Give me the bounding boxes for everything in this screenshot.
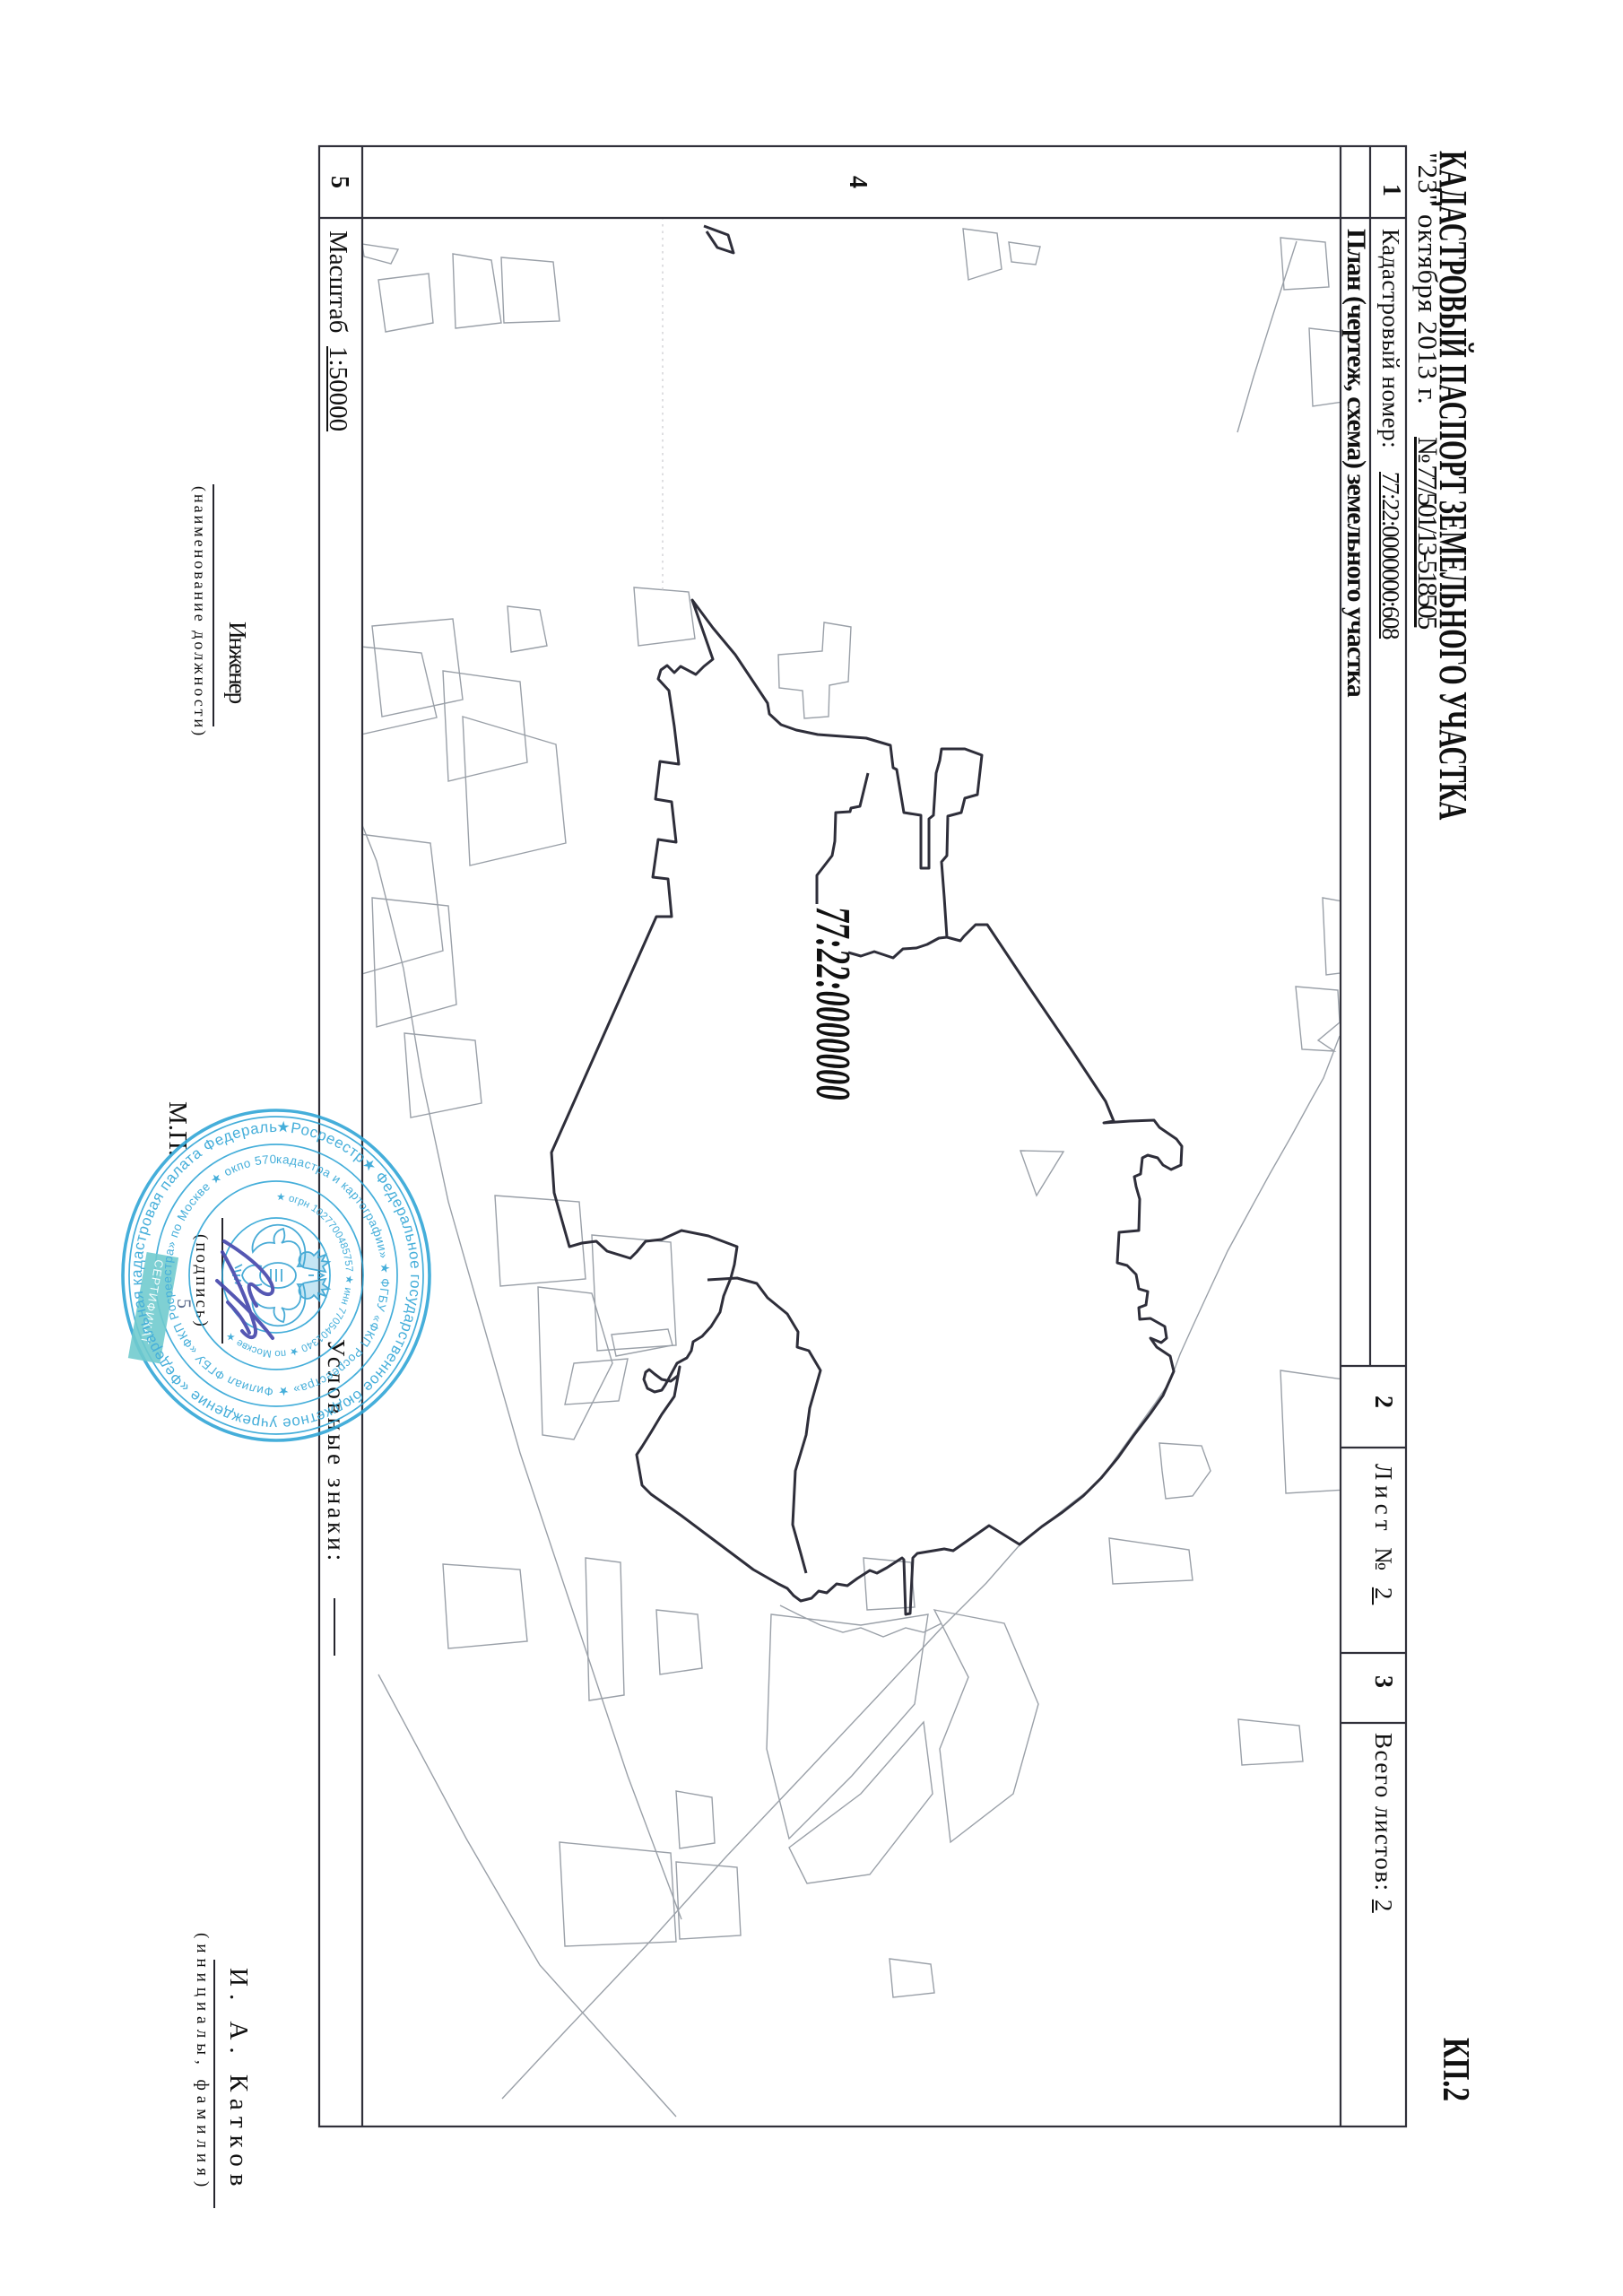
svg-text:★Росреестр★ Федеральное госуда: ★Росреестр★ Федеральное государственное …: [128, 0, 1623, 1432]
